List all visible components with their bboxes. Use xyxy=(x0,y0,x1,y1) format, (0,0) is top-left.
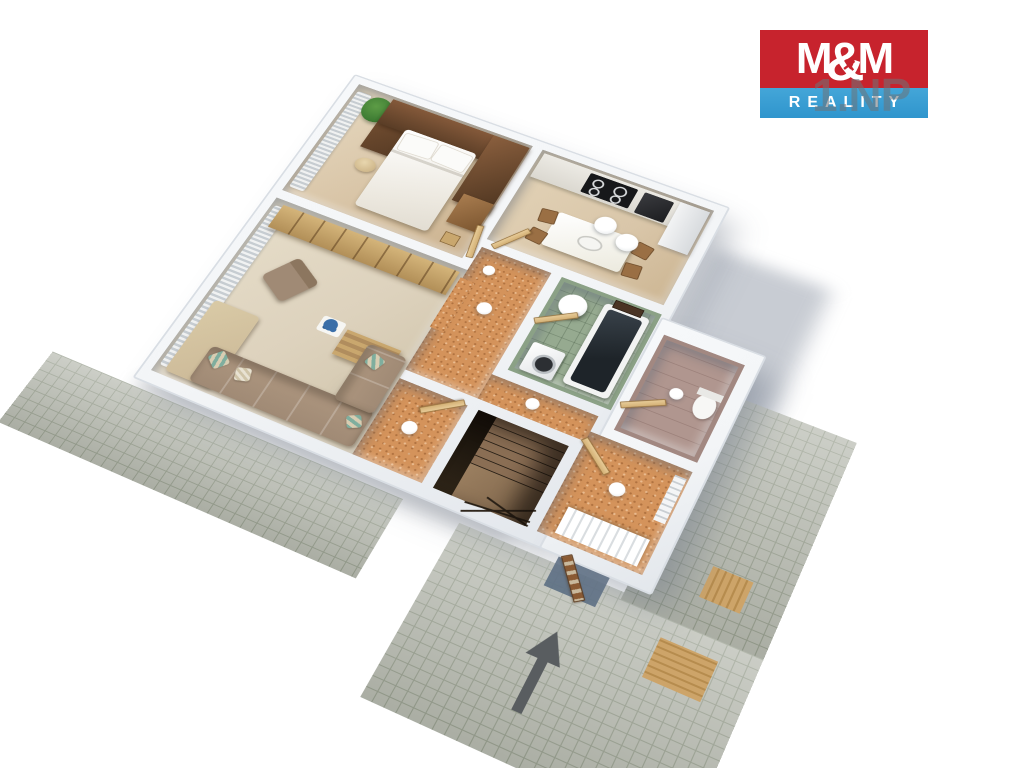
agency-logo: M&M ✕ REALITY 1.NP xyxy=(760,30,928,118)
bedroom-pouf xyxy=(351,155,379,174)
floor-level-watermark: 1.NP xyxy=(812,68,910,122)
washer-door xyxy=(528,352,559,378)
armchair xyxy=(261,257,319,302)
bedroom-stool xyxy=(439,231,461,247)
washing-machine xyxy=(518,341,566,381)
plate xyxy=(574,233,605,254)
armchair-back xyxy=(290,257,319,288)
sofa-pillow xyxy=(233,367,252,382)
plan-3d xyxy=(0,52,931,768)
sofa-pillow xyxy=(346,415,362,428)
dining-chair xyxy=(620,262,643,280)
floor-plan-render: M&M ✕ REALITY 1.NP xyxy=(0,0,1024,768)
